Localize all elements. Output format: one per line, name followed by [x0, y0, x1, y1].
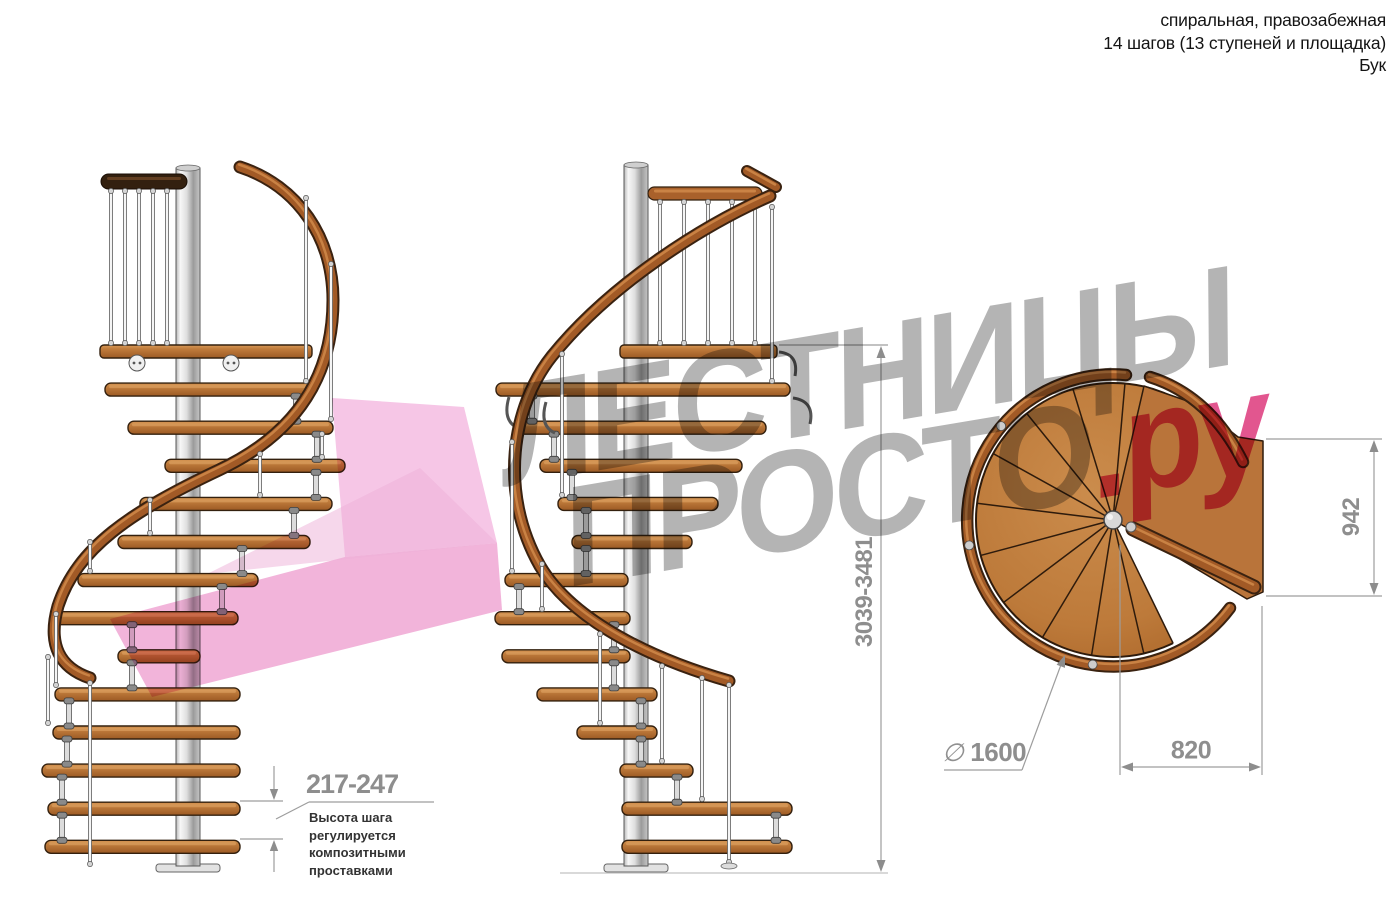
- baluster: [110, 189, 113, 345]
- dimension-diameter: ∅1600: [942, 737, 1026, 768]
- note-line: Высота шага: [309, 809, 406, 827]
- step-highlight: [46, 766, 236, 769]
- baluster: [599, 632, 602, 725]
- baluster-joint: [87, 861, 92, 866]
- baluster-joint: [681, 199, 686, 204]
- step-plank: [622, 840, 792, 853]
- step-highlight: [52, 804, 236, 807]
- spacer-collar: [237, 571, 247, 577]
- baluster-joint: [257, 451, 262, 456]
- spacer-collar: [237, 546, 247, 552]
- baluster-joint: [539, 561, 544, 566]
- note-line: композитными: [309, 844, 406, 862]
- step-plank: [105, 383, 312, 396]
- baluster-joint: [87, 539, 92, 544]
- bolt: [139, 362, 142, 365]
- spacer-collar: [57, 799, 67, 805]
- landing-rail: [648, 187, 762, 200]
- baluster: [661, 664, 664, 763]
- spacer-collar: [771, 812, 781, 818]
- dimension-arrow: [1249, 763, 1261, 772]
- mount-plate: [223, 355, 239, 371]
- baluster-joint: [147, 530, 152, 535]
- spacer-collar: [609, 647, 619, 653]
- step-highlight: [82, 576, 254, 579]
- baluster-joint: [164, 188, 169, 193]
- dimension-step-height: 217-247: [306, 769, 398, 800]
- dimension-total-height: 3039-3481: [851, 537, 879, 647]
- step-highlight: [109, 385, 308, 388]
- title-line-steps: 14 шагов (13 ступеней и площадка): [1103, 32, 1386, 55]
- baluster-joint: [150, 188, 155, 193]
- baluster: [47, 655, 50, 725]
- step-plank: [622, 802, 792, 815]
- spacer-collar: [311, 494, 321, 500]
- baluster: [152, 189, 155, 345]
- baluster-joint: [769, 204, 774, 209]
- landing-rail: [101, 174, 187, 189]
- step-plank: [53, 726, 240, 739]
- baluster: [659, 200, 662, 345]
- baluster-joint: [257, 492, 262, 497]
- spacer-collar: [289, 507, 299, 513]
- step-highlight: [626, 842, 788, 845]
- spacer-collar: [57, 837, 67, 843]
- baluster: [330, 262, 333, 421]
- step-highlight: [57, 728, 236, 731]
- baluster-joint: [45, 720, 50, 725]
- landing-platform: [100, 345, 312, 358]
- step-plank: [48, 802, 240, 815]
- baluster-joint: [45, 654, 50, 659]
- baluster-joint: [108, 340, 113, 345]
- baluster-joint: [539, 606, 544, 611]
- diameter-value: 1600: [970, 737, 1026, 767]
- bolt: [133, 362, 136, 365]
- pole-top: [176, 165, 200, 171]
- dimension-line: [1022, 662, 1062, 770]
- baluster: [89, 540, 92, 573]
- baluster-joint: [122, 188, 127, 193]
- baluster-joint: [657, 199, 662, 204]
- baluster-joint: [659, 663, 664, 668]
- baluster-joint: [597, 720, 602, 725]
- baluster-joint: [726, 682, 731, 687]
- spacer-collar: [514, 609, 524, 615]
- landing-rail-highlight: [107, 177, 181, 180]
- left-side-view: [42, 165, 345, 873]
- baluster-joint: [705, 199, 710, 204]
- arrow-body: [110, 543, 502, 697]
- step-height-note: Высота шага регулируется композитными пр…: [309, 809, 406, 879]
- baluster-foot: [721, 863, 737, 869]
- baluster: [728, 683, 731, 864]
- baluster-joint: [319, 431, 324, 436]
- baluster-joint: [87, 680, 92, 685]
- drawing-sheet: спиральная, правозабежная 14 шагов (13 с…: [0, 0, 1400, 914]
- spacer-collar: [57, 812, 67, 818]
- baluster-joint: [87, 568, 92, 573]
- spacer-collar: [64, 698, 74, 704]
- baluster: [683, 200, 686, 345]
- spacer-collar: [636, 698, 646, 704]
- baluster-joint: [303, 378, 308, 383]
- bolt: [227, 362, 230, 365]
- title-line-material: Бук: [1103, 54, 1386, 77]
- baluster-joint: [303, 195, 308, 200]
- spacer-collar: [311, 469, 321, 475]
- baluster-joint: [150, 340, 155, 345]
- dimension-arrow: [877, 860, 886, 872]
- dimension-step-width: 820: [1171, 737, 1211, 766]
- landing-rail-highlight: [654, 190, 756, 193]
- baluster-joint: [164, 340, 169, 345]
- title-line-type: спиральная, правозабежная: [1103, 9, 1386, 32]
- watermark-ru: .ру: [1091, 341, 1267, 531]
- spacer-collar: [64, 723, 74, 729]
- baluster-joint: [136, 188, 141, 193]
- note-line: регулируется: [309, 827, 406, 845]
- step-highlight: [506, 652, 626, 655]
- spacer-collar: [127, 685, 137, 691]
- center-pole: [176, 168, 200, 866]
- baluster: [124, 189, 127, 345]
- step-highlight: [49, 842, 236, 845]
- dimension-arrow: [270, 840, 278, 851]
- baluster: [89, 681, 92, 866]
- baluster-joint: [147, 497, 152, 502]
- baluster: [166, 189, 169, 345]
- diameter-icon: ∅: [942, 739, 963, 767]
- baluster-joint: [136, 340, 141, 345]
- spacer-collar: [672, 799, 682, 805]
- rail-connector: [1088, 660, 1097, 669]
- title-block: спиральная, правозабежная 14 шагов (13 с…: [1103, 9, 1386, 77]
- baluster: [701, 676, 704, 801]
- baluster: [259, 452, 262, 497]
- spacer-collar: [672, 774, 682, 780]
- spacer-collar: [62, 736, 72, 742]
- pole-top: [624, 162, 648, 168]
- spacer-collar: [609, 685, 619, 691]
- baluster-joint: [729, 199, 734, 204]
- baluster: [541, 562, 544, 611]
- step-highlight: [541, 690, 653, 693]
- step-plank: [55, 688, 240, 701]
- spacer-collar: [57, 774, 67, 780]
- dimension-landing-width: 942: [1338, 498, 1366, 537]
- step-highlight: [626, 804, 788, 807]
- step-highlight: [624, 766, 689, 769]
- spacer-collar: [636, 736, 646, 742]
- spacer-collar: [514, 584, 524, 590]
- baluster-joint: [699, 796, 704, 801]
- baluster: [138, 189, 141, 345]
- baluster: [149, 498, 152, 535]
- note-line: проставками: [309, 862, 406, 880]
- spacer-collar: [771, 837, 781, 843]
- baluster-joint: [509, 568, 514, 573]
- dimension-arrow: [1370, 440, 1379, 452]
- baluster-joint: [319, 454, 324, 459]
- dimension-arrow: [270, 789, 278, 800]
- step-plank: [45, 840, 240, 853]
- dimension-arrow: [1121, 763, 1133, 772]
- dimension-arrow: [1370, 583, 1379, 595]
- spacer-collar: [636, 761, 646, 767]
- dimension-line: [276, 802, 309, 819]
- baluster-joint: [108, 188, 113, 193]
- baluster-joint: [122, 340, 127, 345]
- step-highlight: [59, 690, 236, 693]
- baluster: [55, 612, 58, 687]
- spacer-collar: [62, 761, 72, 767]
- spacer-collar: [609, 660, 619, 666]
- baluster-joint: [699, 675, 704, 680]
- baluster-joint: [328, 416, 333, 421]
- spacer-collar: [636, 723, 646, 729]
- baluster-joint: [53, 682, 58, 687]
- step-plank: [78, 574, 258, 587]
- baluster-joint: [53, 611, 58, 616]
- mount-plate: [129, 355, 145, 371]
- baluster-joint: [597, 631, 602, 636]
- step-plank: [128, 421, 333, 434]
- baluster: [305, 196, 308, 383]
- baluster-joint: [659, 758, 664, 763]
- baluster-joint: [328, 261, 333, 266]
- bolt: [233, 362, 236, 365]
